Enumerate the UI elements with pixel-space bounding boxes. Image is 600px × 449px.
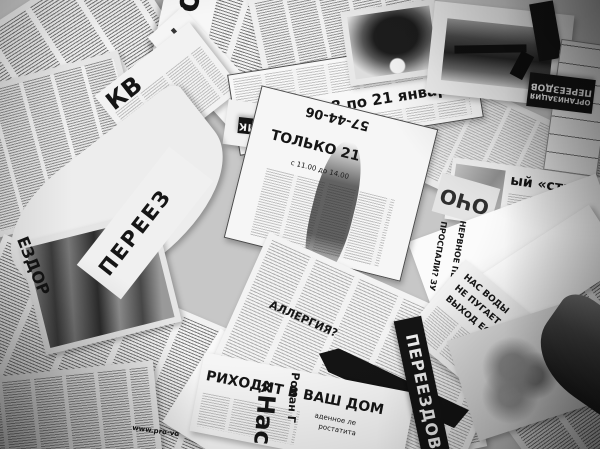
org-pereezdov-banner: ОРГАНИЗАЦИЯ ПЕРЕЕЗДОВ (526, 72, 596, 114)
newsprint-columns (0, 367, 160, 449)
headline-nas-quote: «Нас (250, 378, 280, 446)
revolver-barrel (454, 44, 526, 53)
newspaper-collage-photo: осква КВ Внимание!!! с 18 по 21 января П… (0, 0, 600, 449)
dark-object-photo (347, 6, 438, 80)
headline-ocho: ОЧО (438, 185, 492, 218)
newspaper-scrap (0, 360, 166, 449)
